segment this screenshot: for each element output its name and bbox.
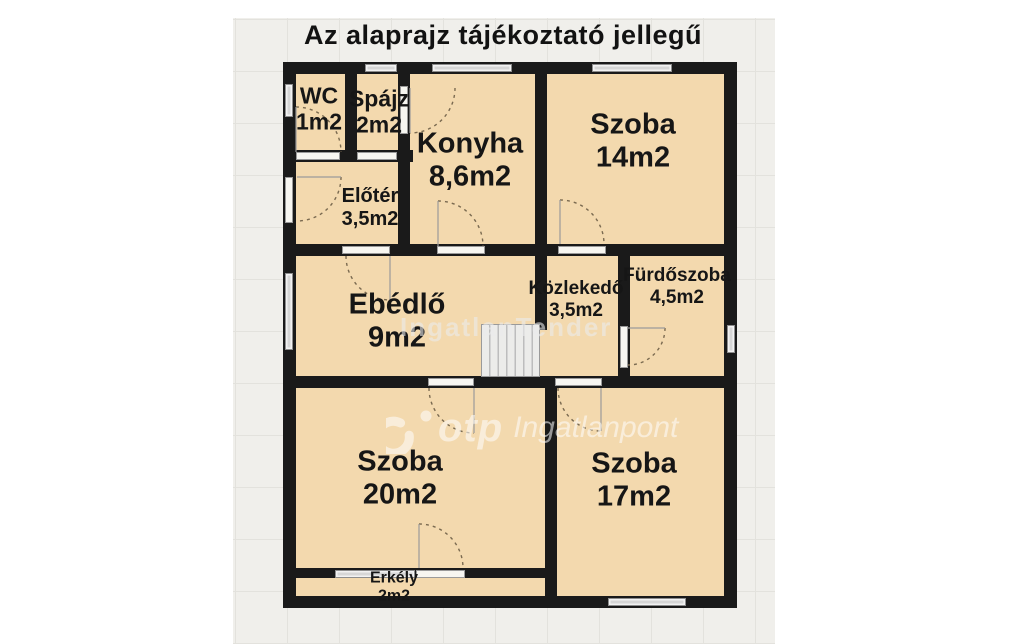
otp-logo-dot: [421, 411, 432, 422]
watermark-otp: otp Ingatlanpont: [386, 402, 678, 454]
room-label-eloter: Előtér3,5m2: [342, 185, 399, 231]
watermark-otp-suffix: Ingatlanpont: [513, 411, 678, 445]
room-label-wc: WC1m2: [296, 83, 342, 136]
room-label-szoba14: Szoba14m2: [590, 109, 675, 176]
otp-logo-icon: [386, 402, 432, 454]
plan-title: Az alaprajz tájékoztató jellegű: [304, 20, 702, 51]
door-arc: [419, 524, 463, 568]
floorplan-page: Az alaprajz tájékoztató jellegű: [0, 0, 1024, 644]
room-label-szoba20: Szoba20m2: [357, 446, 442, 513]
door-arc: [297, 177, 341, 221]
room-label-erkely: Erkély2m2: [370, 570, 418, 607]
door-arc: [628, 328, 665, 365]
otp-logo-ring: [386, 421, 409, 453]
room-label-spajz: Spájz2m2: [349, 86, 409, 139]
watermark-otp-word: otp: [438, 406, 503, 451]
door-arc: [438, 201, 483, 246]
room-label-furdoszoba: Fürdőszoba4,5m2: [623, 265, 731, 309]
room-label-konyha: Konyha8,6m2: [417, 128, 523, 195]
watermark-ingatlantender: IngatlanTender: [400, 312, 612, 343]
room-label-szoba17: Szoba17m2: [591, 448, 676, 515]
door-arc: [560, 200, 604, 244]
door-arc: [410, 88, 455, 133]
